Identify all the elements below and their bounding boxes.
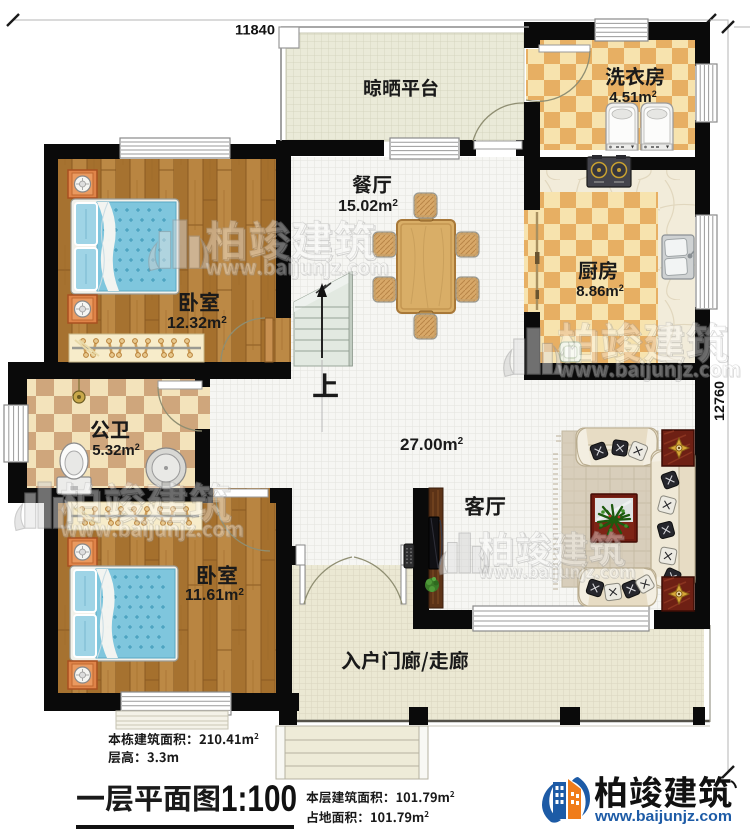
svg-text:12.32m2: 12.32m2 (167, 315, 227, 332)
svg-text:8.86m2: 8.86m2 (576, 283, 624, 300)
svg-text:15.02m2: 15.02m2 (338, 198, 398, 215)
svg-text:1:100: 1:100 (221, 778, 297, 819)
svg-text:www.baijunjz.com: www.baijunjz.com (594, 808, 732, 825)
svg-text:4.51m2: 4.51m2 (609, 89, 657, 106)
svg-text:27.00m2: 27.00m2 (400, 435, 464, 454)
svg-text:12760: 12760 (711, 381, 727, 421)
svg-text:11.61m2: 11.61m2 (185, 587, 244, 604)
svg-text:5.32m2: 5.32m2 (92, 442, 140, 459)
svg-text:11840: 11840 (235, 22, 275, 38)
